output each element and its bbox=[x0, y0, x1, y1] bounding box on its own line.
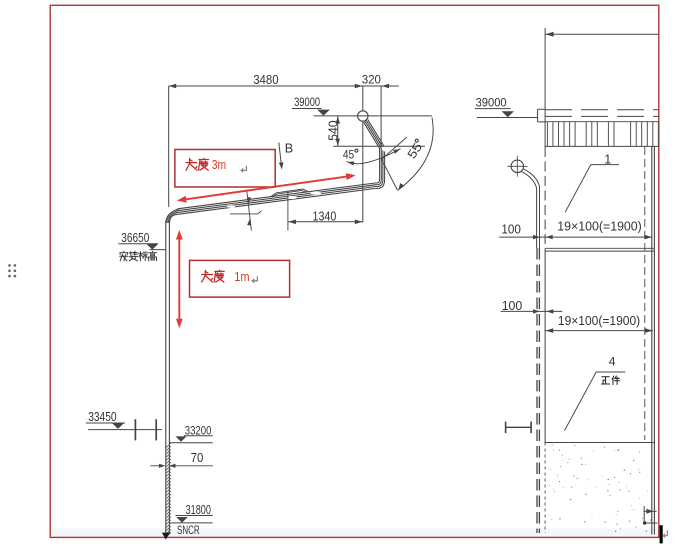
svg-text:3480: 3480 bbox=[253, 72, 278, 87]
svg-text:100: 100 bbox=[501, 222, 521, 237]
svg-text:31800: 31800 bbox=[186, 503, 211, 517]
svg-text:540: 540 bbox=[326, 120, 341, 140]
svg-text:1m: 1m bbox=[234, 270, 249, 284]
svg-text:45: 45 bbox=[343, 148, 354, 162]
svg-text:SNCR: SNCR bbox=[177, 523, 200, 537]
svg-text:3m: 3m bbox=[212, 158, 226, 172]
svg-text:39000: 39000 bbox=[294, 95, 320, 109]
svg-text:36650: 36650 bbox=[121, 231, 149, 245]
svg-text:33450: 33450 bbox=[88, 410, 116, 424]
svg-text:70: 70 bbox=[191, 451, 204, 465]
svg-text:19×100(=1900): 19×100(=1900) bbox=[558, 313, 640, 328]
svg-text:B: B bbox=[285, 142, 293, 156]
svg-text:4: 4 bbox=[609, 354, 616, 368]
svg-text:320: 320 bbox=[362, 72, 382, 86]
svg-text:1340: 1340 bbox=[313, 208, 337, 223]
svg-text:39000: 39000 bbox=[476, 95, 507, 109]
svg-text:100: 100 bbox=[502, 298, 523, 313]
svg-text:19×100(=1900): 19×100(=1900) bbox=[557, 219, 642, 234]
